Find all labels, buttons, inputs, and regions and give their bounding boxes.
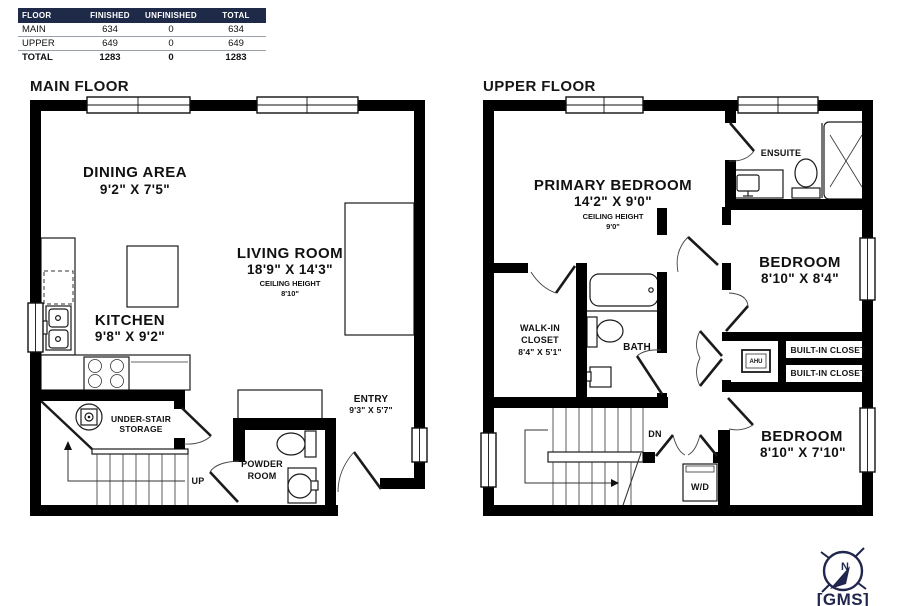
ensuite-toilet-tank bbox=[792, 188, 820, 198]
wall bbox=[380, 478, 425, 489]
powder-label-2: ROOM bbox=[248, 471, 277, 481]
powder-door-leaf bbox=[210, 472, 238, 502]
door-jamb bbox=[174, 398, 185, 409]
closet-bottom-wall bbox=[722, 382, 873, 392]
ensuite-wall bbox=[725, 160, 736, 202]
powder-faucet bbox=[311, 481, 318, 490]
compass-tick bbox=[821, 552, 829, 558]
ahu-label: AHU bbox=[750, 359, 763, 365]
dishwasher bbox=[44, 271, 73, 304]
compass-tick bbox=[856, 548, 864, 556]
closet-top-wall bbox=[722, 332, 873, 341]
entry-dims: 9'3" X 5'7" bbox=[349, 405, 393, 415]
bath-toilet-tank bbox=[587, 317, 597, 347]
ceiling-height-value: 8'10" bbox=[281, 289, 299, 298]
dining-area-label: DINING AREA bbox=[83, 164, 187, 181]
gms-logo-text: [GMS] bbox=[817, 590, 870, 606]
up-label: UP bbox=[192, 476, 205, 486]
ensuite-fixtures bbox=[728, 122, 868, 199]
powder-door-swing bbox=[210, 461, 239, 472]
wall bbox=[190, 100, 257, 111]
kitchen-sink-unit bbox=[46, 306, 71, 350]
powder-label-1: POWDER bbox=[241, 459, 283, 469]
upper-stairs bbox=[525, 408, 643, 511]
wall bbox=[483, 505, 873, 516]
main-floor-plan: DINING AREA 9'2" X 7'5" LIVING ROOM 18'9… bbox=[28, 97, 427, 516]
living-room-dims: 18'9" X 14'3" bbox=[247, 262, 333, 277]
living-room-builtin bbox=[345, 203, 414, 335]
floorplan-drawing: DINING AREA 9'2" X 7'5" LIVING ROOM 18'9… bbox=[0, 0, 910, 606]
upper-floor-plan: PRIMARY BEDROOM 14'2" X 9'0" CEILING HEI… bbox=[481, 97, 875, 516]
primary-door-leaf bbox=[688, 237, 718, 265]
hall-wall bbox=[657, 208, 667, 235]
bifold-door-swing bbox=[673, 435, 685, 455]
bath-label: BATH bbox=[623, 342, 651, 353]
storage-wall bbox=[41, 390, 185, 401]
mechanical-unit bbox=[76, 404, 102, 430]
bedroom3-label: BEDROOM bbox=[761, 428, 843, 445]
kitchen-dims: 9'8" X 9'2" bbox=[95, 329, 165, 344]
primary-ceiling-value: 9'0" bbox=[606, 222, 620, 231]
powder-room-fixtures bbox=[277, 431, 318, 503]
toilet-tank bbox=[305, 431, 316, 457]
walkin-dims: 8'4" X 5'1" bbox=[518, 347, 562, 357]
primary-ceiling-label: CEILING HEIGHT bbox=[583, 212, 644, 221]
up-arrow-head bbox=[64, 441, 72, 450]
primary-bedroom-label: PRIMARY BEDROOM bbox=[534, 177, 692, 194]
kitchen-island bbox=[127, 246, 178, 307]
ensuite-label: ENSUITE bbox=[761, 148, 801, 158]
bedroom2-door-leaf bbox=[726, 306, 748, 331]
front-door-leaf bbox=[354, 452, 381, 489]
bedroom2-wall bbox=[722, 263, 731, 290]
stair-nosing bbox=[92, 449, 188, 454]
mech-dot bbox=[88, 416, 91, 419]
wall bbox=[30, 505, 338, 516]
bedroom2-label: BEDROOM bbox=[759, 254, 841, 271]
bedroom3-wall-left bbox=[718, 430, 730, 516]
compass-tick bbox=[858, 583, 866, 589]
compass-needle bbox=[830, 566, 850, 589]
closet-divider bbox=[786, 358, 873, 365]
front-door-swing bbox=[338, 452, 354, 492]
ahu-door-swing bbox=[697, 331, 701, 358]
primary-bedroom-dims: 14'2" X 9'0" bbox=[574, 194, 652, 209]
kitchen-label: KITCHEN bbox=[95, 312, 165, 329]
bath-toilet-bowl bbox=[597, 320, 623, 342]
living-room-label: LIVING ROOM bbox=[237, 245, 343, 262]
ahu-door-leaf bbox=[700, 359, 722, 386]
ensuite-toilet-bowl bbox=[795, 159, 817, 187]
entry-closet bbox=[238, 390, 322, 419]
stair-landing-rail bbox=[548, 452, 643, 462]
storage-door-leaf bbox=[182, 408, 211, 436]
door-jamb bbox=[643, 452, 655, 463]
toilet-bowl bbox=[277, 433, 305, 455]
powder-wall-left bbox=[233, 418, 245, 462]
storage-door-swing bbox=[184, 436, 211, 444]
ensuite-door-swing bbox=[729, 151, 754, 161]
bifold-door-leaf bbox=[700, 435, 717, 456]
primary-bottom-wall bbox=[483, 263, 528, 273]
walkin-door-swing bbox=[531, 272, 556, 293]
builtin-closet-1-label: BUILT-IN CLOSET bbox=[790, 345, 866, 355]
primary-door-swing bbox=[677, 237, 688, 272]
powder-wall-right bbox=[325, 418, 336, 516]
storage-label-2: STORAGE bbox=[119, 424, 162, 434]
bedroom2-dims: 8'10" X 8'4" bbox=[761, 271, 839, 286]
gms-logo: N [GMS] bbox=[817, 548, 870, 606]
builtin-closet-2-label: BUILT-IN CLOSET bbox=[790, 368, 866, 378]
bath-sink bbox=[590, 367, 611, 387]
wall bbox=[30, 100, 41, 305]
ensuite-door-leaf bbox=[730, 123, 754, 151]
bedroom2-wall bbox=[722, 207, 731, 225]
ensuite-vanity bbox=[728, 170, 783, 198]
bedroom3-door-swing bbox=[729, 425, 753, 430]
bedroom3-door-leaf bbox=[728, 398, 753, 425]
powder-wall-top bbox=[233, 418, 325, 430]
hall-bottom-wall bbox=[483, 397, 668, 408]
floorplan-page: FLOOR FINISHED UNFINISHED TOTAL MAIN 634… bbox=[0, 0, 910, 606]
walkin-label-2: CLOSET bbox=[521, 335, 559, 345]
storage-label-1: UNDER-STAIR bbox=[111, 414, 171, 424]
wall bbox=[643, 100, 738, 111]
ensuite-bottom-wall bbox=[725, 199, 873, 210]
bath-wall-left bbox=[576, 263, 587, 408]
dining-area-dims: 9'2" X 7'5" bbox=[100, 182, 170, 197]
walkin-label-1: WALK-IN bbox=[520, 323, 560, 333]
entry-label: ENTRY bbox=[354, 394, 389, 405]
ahu-door-swing bbox=[697, 358, 701, 386]
ahu-door-leaf bbox=[700, 331, 722, 356]
wall bbox=[483, 100, 566, 111]
bath-door-leaf bbox=[637, 356, 662, 394]
ceiling-height-label: CEILING HEIGHT bbox=[260, 279, 321, 288]
wd-label: W/D bbox=[691, 482, 709, 492]
wall bbox=[862, 100, 873, 238]
walkin-door-leaf bbox=[556, 266, 575, 293]
bathtub bbox=[590, 274, 658, 306]
ahu-wall-right bbox=[778, 340, 786, 384]
wall bbox=[414, 460, 425, 478]
bifold-door-swing bbox=[688, 435, 700, 455]
dn-label: DN bbox=[648, 429, 661, 439]
ensuite-wall bbox=[725, 111, 736, 123]
bedroom3-dims: 8'10" X 7'10" bbox=[760, 445, 846, 460]
bath-wall-right bbox=[657, 272, 667, 353]
wall bbox=[30, 350, 41, 516]
bedroom2-door-swing bbox=[729, 293, 748, 306]
door-jamb bbox=[174, 438, 185, 449]
wall bbox=[414, 100, 425, 430]
